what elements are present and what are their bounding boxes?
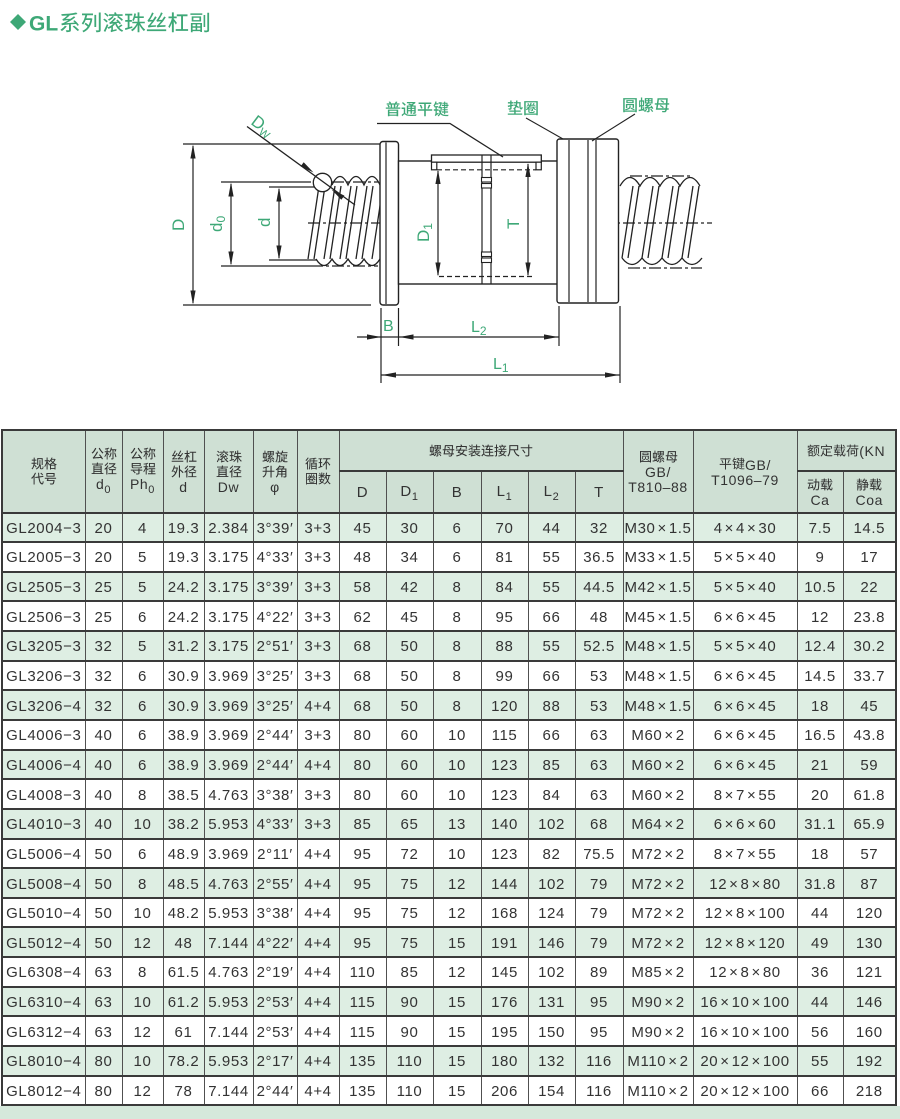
svg-text:D: D <box>169 219 188 231</box>
svg-text:d: d <box>255 218 274 227</box>
svg-text:L2: L2 <box>471 319 487 338</box>
svg-text:DW: DW <box>246 112 277 143</box>
svg-text:d0: d0 <box>207 216 228 232</box>
svg-text:L1: L1 <box>493 356 509 375</box>
svg-text:T: T <box>504 219 523 229</box>
svg-text:B: B <box>383 318 394 335</box>
